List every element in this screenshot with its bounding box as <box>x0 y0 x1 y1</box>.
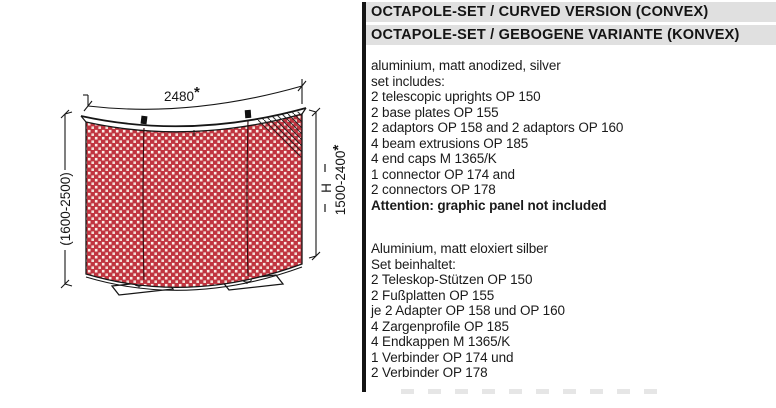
product-info-column: OCTAPOLE-SET / CURVED VERSION (CONVEX) O… <box>366 0 776 408</box>
rail-clip-left <box>141 116 148 125</box>
overall-height-label: (1600-2500) <box>58 172 73 246</box>
set-item: je 2 Adapter OP 158 und OP 160 <box>371 303 776 319</box>
set-item: 2 base plates OP 155 <box>371 105 776 121</box>
set-item: 2 Fußplatten OP 155 <box>371 288 776 304</box>
spec-block-de: Aluminium, matt eloxiert silber Set bein… <box>371 241 776 381</box>
set-item: 2 connectors OP 178 <box>371 182 776 198</box>
set-item: 4 Endkappen M 1365/K <box>371 334 776 350</box>
set-label-en: set includes: <box>371 74 776 90</box>
set-item: 4 end caps M 1365/K <box>371 151 776 167</box>
set-item: 2 adaptors OP 158 and 2 adaptors OP 160 <box>371 120 776 136</box>
spec-block-en: aluminium, matt anodized, silver set inc… <box>371 58 776 213</box>
technical-drawing: 2480* (1600-2500) H 1500-2400* <box>0 0 362 408</box>
curved-panel <box>86 114 302 287</box>
cut-off-text-remnant <box>401 389 661 394</box>
attention-note-en: Attention: graphic panel not included <box>371 198 776 214</box>
material-en: aluminium, matt anodized, silver <box>371 58 776 74</box>
product-title-en: OCTAPOLE-SET / CURVED VERSION (CONVEX) <box>366 2 776 22</box>
product-title-de: OCTAPOLE-SET / GEBOGENE VARIANTE (KONVEX… <box>366 25 776 45</box>
set-item: 1 Verbinder OP 174 und <box>371 350 776 366</box>
height-range-label: 1500-2400* <box>330 145 348 216</box>
set-item: 2 Teleskop-Stützen OP 150 <box>371 272 776 288</box>
set-item: 1 connector OP 174 and <box>371 167 776 183</box>
set-item: 4 beam extrusions OP 185 <box>371 136 776 152</box>
set-item: 2 Verbinder OP 178 <box>371 365 776 381</box>
material-de: Aluminium, matt eloxiert silber <box>371 241 776 257</box>
rail-clip-right <box>245 110 252 118</box>
set-label-de: Set beinhaltet: <box>371 257 776 273</box>
set-item: 4 Zargenprofile OP 185 <box>371 319 776 335</box>
set-item: 2 telescopic uprights OP 150 <box>371 89 776 105</box>
catalog-page: 2480* (1600-2500) H 1500-2400* <box>0 0 776 408</box>
height-symbol-label: H <box>319 183 334 193</box>
